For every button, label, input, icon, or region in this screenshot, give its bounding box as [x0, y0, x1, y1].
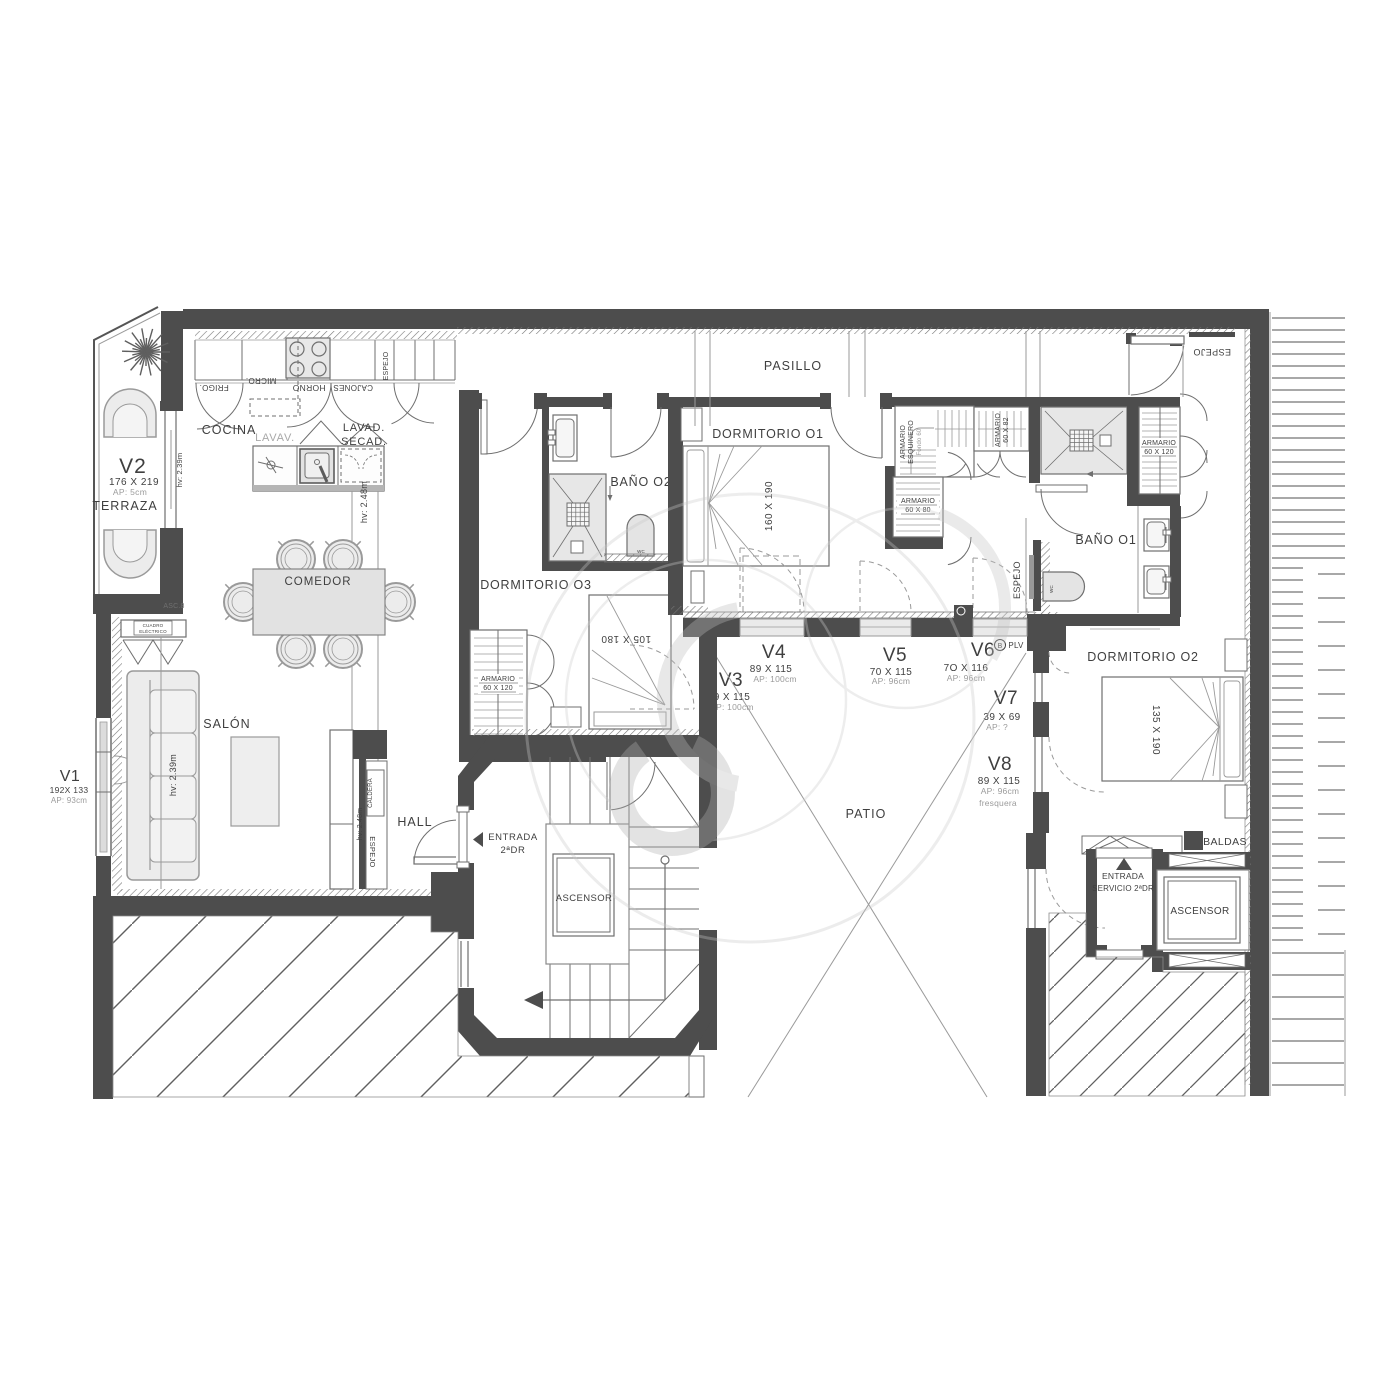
svg-text:AP: 96cm: AP: 96cm: [872, 676, 910, 686]
svg-text:ARMARIO: ARMARIO: [901, 498, 935, 505]
svg-text:HALL: HALL: [397, 815, 432, 829]
svg-text:ARMARIO: ARMARIO: [1142, 440, 1176, 447]
svg-text:AP: ?: AP: ?: [986, 722, 1008, 732]
svg-text:LAVAV.: LAVAV.: [255, 432, 295, 444]
svg-text:BAÑO O1: BAÑO O1: [1075, 533, 1136, 547]
svg-text:ESPEJO: ESPEJO: [383, 351, 390, 380]
svg-text:160 X 190: 160 X 190: [764, 481, 775, 531]
svg-text:ESQUINERO: ESQUINERO: [908, 420, 915, 464]
svg-text:SECAD.: SECAD.: [341, 436, 387, 448]
svg-text:HORNO: HORNO: [292, 383, 325, 393]
svg-text:ELÉCTRICO: ELÉCTRICO: [139, 628, 167, 634]
svg-text:MICRO.: MICRO.: [246, 376, 277, 385]
svg-text:AP: 93cm: AP: 93cm: [51, 796, 87, 805]
svg-text:V5: V5: [883, 645, 907, 666]
svg-text:LAVAD.: LAVAD.: [343, 422, 385, 434]
svg-text:105 X 180: 105 X 180: [601, 633, 651, 644]
svg-text:fresquera: fresquera: [979, 798, 1017, 808]
svg-text:V1: V1: [60, 768, 81, 785]
svg-text:ASCENSOR: ASCENSOR: [1170, 906, 1229, 917]
svg-text:hv: 2.48m: hv: 2.48m: [357, 808, 364, 841]
svg-text:135 X 190: 135 X 190: [1150, 705, 1161, 755]
svg-text:60 X 120: 60 X 120: [483, 685, 513, 692]
svg-text:PATIO: PATIO: [846, 807, 887, 821]
svg-text:FRIGO.: FRIGO.: [199, 383, 228, 392]
svg-text:TERRAZA: TERRAZA: [92, 499, 157, 513]
svg-text:AP: 96cm: AP: 96cm: [981, 786, 1019, 796]
svg-text:ENTRADA: ENTRADA: [1102, 871, 1144, 881]
svg-text:hv: 2.48m: hv: 2.48m: [359, 481, 369, 523]
svg-text:V4: V4: [762, 642, 786, 663]
svg-text:DORMITORIO O2: DORMITORIO O2: [1087, 650, 1199, 664]
svg-text:WC: WC: [637, 549, 645, 554]
svg-text:ESPEJO: ESPEJO: [368, 836, 377, 867]
svg-text:BAÑO O2: BAÑO O2: [610, 475, 671, 489]
svg-text:ASC.8: ASC.8: [163, 603, 184, 610]
svg-text:CALDERA: CALDERA: [368, 778, 374, 808]
svg-text:AP: 5cm: AP: 5cm: [113, 487, 147, 497]
svg-text:hv: 2.39m: hv: 2.39m: [175, 453, 184, 488]
svg-text:WC: WC: [1049, 585, 1054, 593]
svg-text:COMEDOR: COMEDOR: [284, 576, 351, 588]
svg-text:CUADRO: CUADRO: [143, 623, 164, 628]
svg-text:V8: V8: [988, 754, 1012, 775]
svg-text:60 X 82: 60 X 82: [1003, 417, 1010, 443]
svg-text:Fondo 60: Fondo 60: [917, 428, 923, 455]
svg-text:SERVICIO 2ªDR: SERVICIO 2ªDR: [1092, 884, 1154, 893]
svg-text:ASCENSOR: ASCENSOR: [556, 893, 613, 904]
svg-text:DORMITORIO O1: DORMITORIO O1: [712, 427, 824, 441]
svg-text:SALÓN: SALÓN: [203, 716, 250, 731]
svg-text:192X 133: 192X 133: [50, 785, 89, 795]
svg-text:ENTRADA: ENTRADA: [488, 832, 538, 843]
svg-text:ARMARIO: ARMARIO: [481, 676, 515, 683]
svg-text:60 X 120: 60 X 120: [1144, 449, 1174, 456]
svg-text:hv: 2.39m: hv: 2.39m: [168, 754, 178, 796]
svg-text:BALDAS: BALDAS: [1203, 836, 1247, 848]
svg-text:ESPEJO: ESPEJO: [1012, 561, 1022, 599]
svg-text:ESPEJO: ESPEJO: [1193, 347, 1231, 357]
svg-text:V2: V2: [119, 455, 147, 478]
svg-text:PLV: PLV: [1008, 641, 1024, 650]
svg-text:2ªDR: 2ªDR: [501, 845, 526, 856]
svg-text:CAJONES: CAJONES: [333, 383, 373, 392]
svg-text:COCINA: COCINA: [202, 423, 257, 437]
svg-text:PASILLO: PASILLO: [764, 359, 822, 373]
svg-text:AP: 100cm: AP: 100cm: [753, 674, 796, 684]
svg-text:ARMARIO: ARMARIO: [995, 413, 1002, 447]
svg-text:ARMARIO: ARMARIO: [900, 425, 907, 459]
